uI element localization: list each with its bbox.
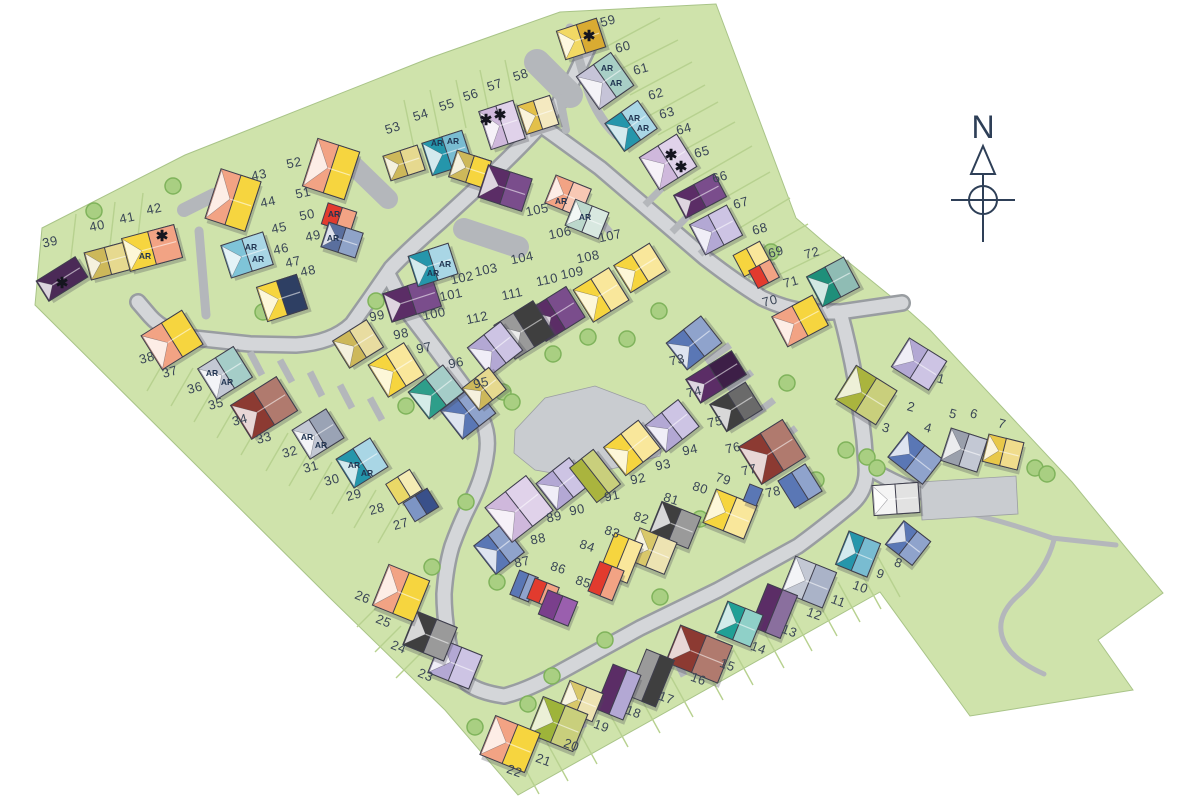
plot-number[interactable]: 75 [706,413,724,431]
plot-number[interactable]: 44 [259,193,277,211]
plot-number[interactable]: 48 [299,262,317,280]
ar-badge: AR [348,460,360,470]
asterisk-badge: ✱ [494,107,507,124]
plot-number[interactable]: 77 [740,461,758,479]
ar-badge: AR [579,212,591,222]
plot-number[interactable]: 76 [724,439,742,457]
plot-number[interactable]: 42 [145,200,163,218]
compass-needle-icon [971,146,995,174]
plot-number[interactable]: 39 [41,233,59,251]
tree-icon [869,460,885,476]
asterisk-badge: ✱ [156,228,169,245]
ar-badge: AR [431,138,443,148]
plot-number[interactable]: 92 [629,470,647,488]
tree-icon [1039,466,1055,482]
tree-icon [520,696,536,712]
parking-area [920,476,1018,520]
tree-icon [779,375,795,391]
plot-number[interactable]: 78 [764,483,782,501]
plot-number[interactable]: 95 [472,374,490,392]
tree-icon [545,346,561,362]
plot-number[interactable]: 45 [270,219,288,237]
ar-badge: AR [637,123,649,133]
ar-badge: AR [327,233,339,243]
plot-number[interactable]: 43 [250,166,268,184]
tree-icon [504,394,520,410]
tree-icon [424,559,440,575]
tree-icon [597,632,613,648]
tree-icon [458,494,474,510]
ar-badge: AR [301,432,313,442]
ar-badge: AR [252,254,264,264]
tree-icon [580,329,596,345]
plot-house[interactable] [872,482,923,519]
plot-number[interactable]: 73 [668,351,686,369]
plot-number[interactable]: 74 [685,383,703,401]
plot-number[interactable]: 52 [285,154,303,172]
tree-icon [165,178,181,194]
plot-number[interactable]: 49 [304,227,322,245]
ar-badge: AR [245,242,257,252]
ar-badge: AR [427,268,439,278]
asterisk-badge: ✱ [480,112,493,129]
ar-badge: AR [610,78,622,88]
plot-number[interactable]: 90 [568,501,586,519]
plot-number[interactable]: 88 [529,530,547,548]
tree-icon [467,719,483,735]
ar-badge: AR [206,368,218,378]
tree-icon [652,589,668,605]
plot-number[interactable]: 94 [681,441,699,459]
ar-badge: AR [139,251,151,261]
plot-number[interactable]: 50 [298,206,316,224]
site-plan-svg: AR✱✱ARARARARARAR✱✱✱ARARARAR✱✱ARARARARARA… [0,0,1200,798]
plot-number[interactable]: 97 [415,339,433,357]
asterisk-badge: ✱ [675,159,688,176]
plot-number[interactable]: 99 [368,307,386,325]
ar-badge: AR [601,63,613,73]
site-plan: AR✱✱ARARARARARAR✱✱✱ARARARAR✱✱ARARARARARA… [0,0,1200,798]
tree-icon [619,331,635,347]
compass: N [951,109,1015,242]
ar-badge: AR [439,259,451,269]
ar-badge: AR [447,136,459,146]
ar-badge: AR [221,377,233,387]
plot-number[interactable]: 91 [603,487,621,505]
ar-badge: AR [628,113,640,123]
tree-icon [838,442,854,458]
tree-icon [398,398,414,414]
plot-number[interactable]: 41 [118,209,136,227]
plot-number[interactable]: 87 [513,553,531,571]
plot-number[interactable]: 98 [392,325,410,343]
tree-icon [651,303,667,319]
asterisk-badge: ✱ [56,275,69,292]
ar-badge: AR [555,196,567,206]
plot-number[interactable]: 40 [88,217,106,235]
plot-number[interactable]: 89 [545,508,563,526]
tree-icon [544,668,560,684]
plot-number[interactable]: 96 [447,354,465,372]
ar-badge: AR [361,468,373,478]
ar-badge: AR [315,440,327,450]
asterisk-badge: ✱ [583,28,596,45]
tree-icon [489,574,505,590]
ar-badge: AR [328,209,340,219]
plot-number[interactable]: 51 [294,184,312,202]
compass-north-label: N [971,109,994,145]
plot-number[interactable]: 93 [654,456,672,474]
